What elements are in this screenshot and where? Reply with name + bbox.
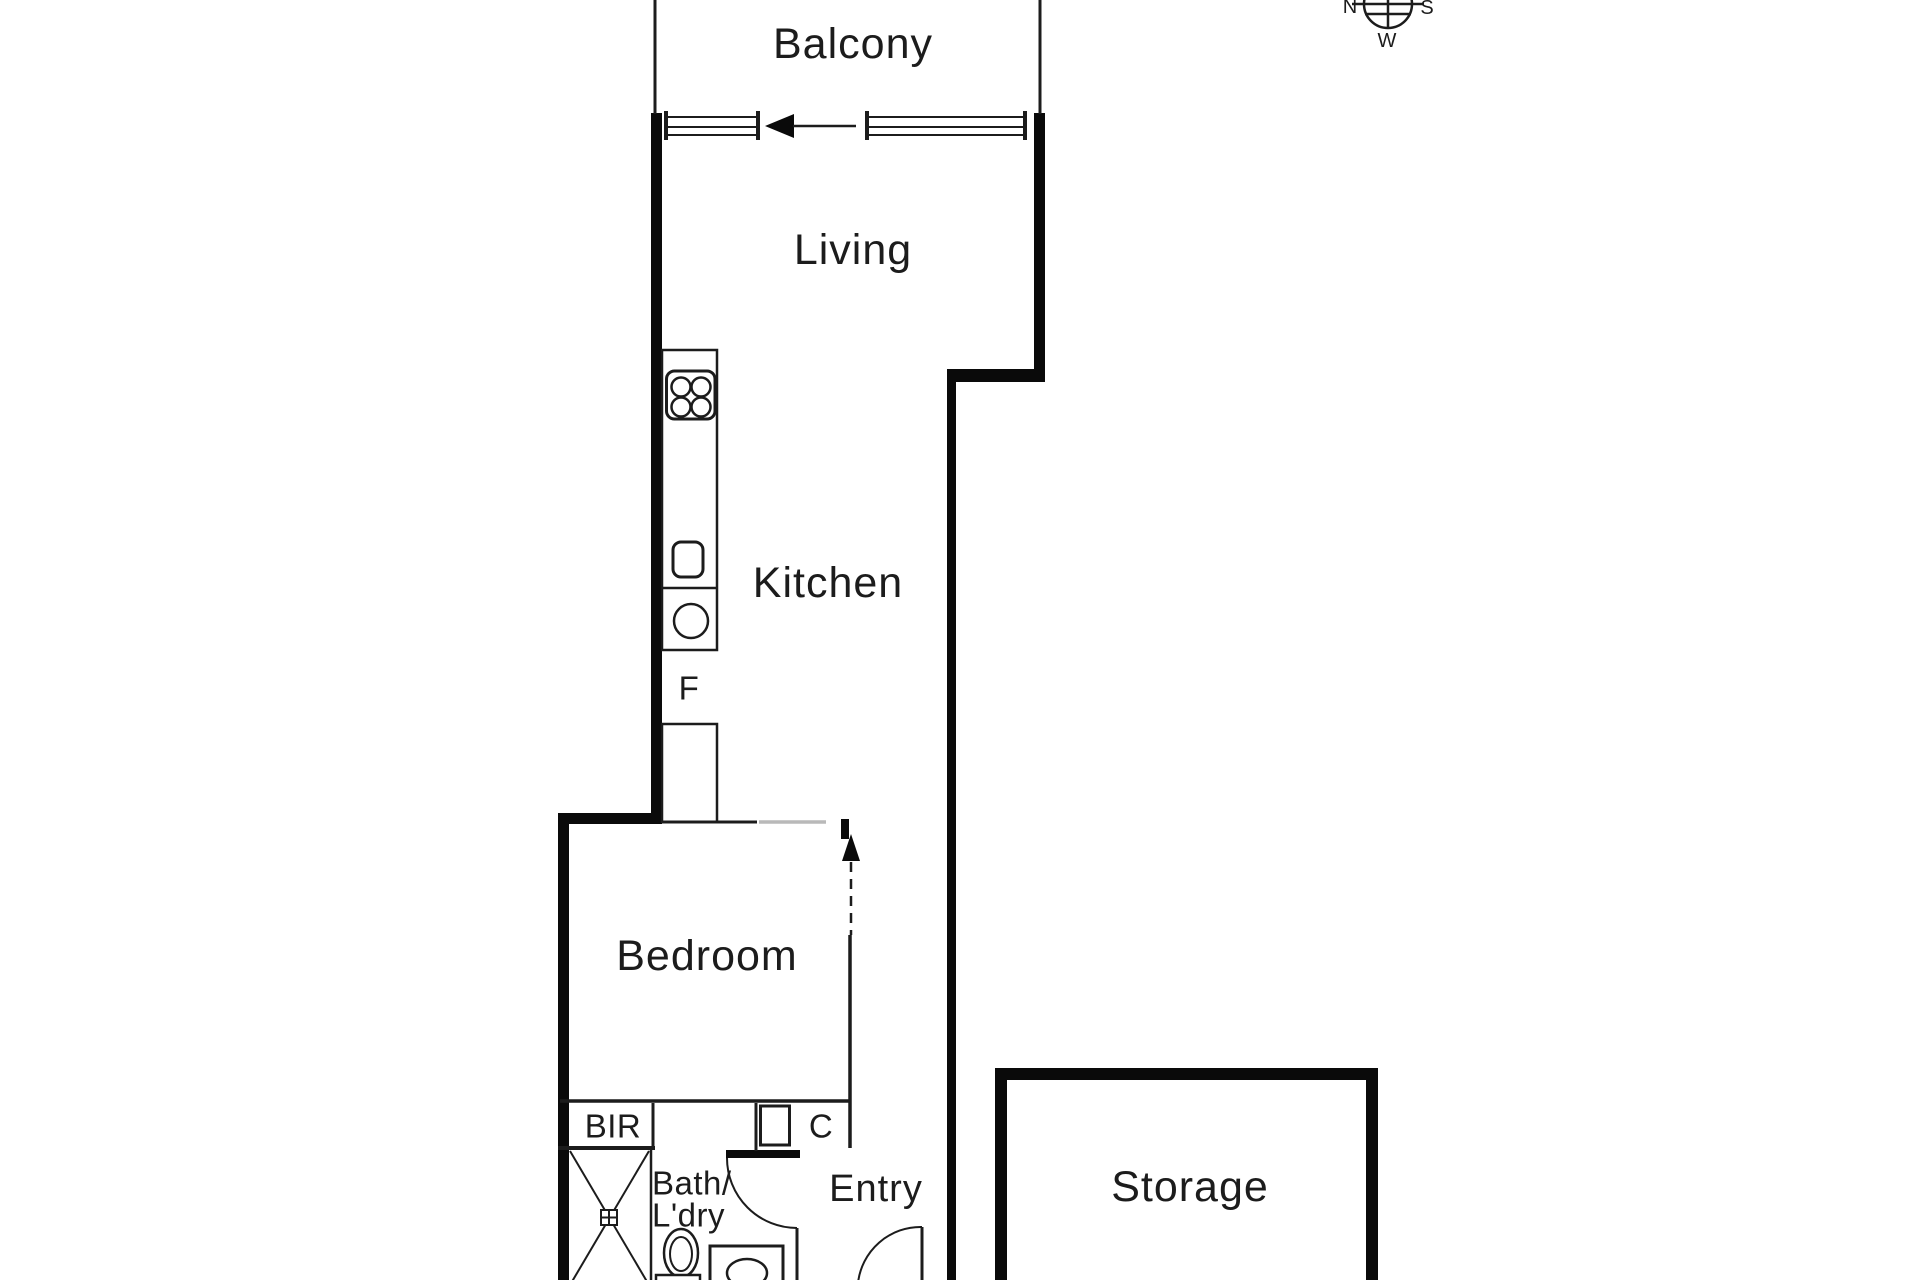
label-cupboard: C: [809, 1108, 833, 1145]
fridge-box: [662, 724, 717, 822]
thin-lines: [558, 0, 1424, 1280]
cupboard-door-icon: [761, 1106, 790, 1145]
toilet-icon: [656, 1229, 700, 1280]
wall-cupboard-bottom: [726, 1150, 800, 1158]
room-label-kitchen: Kitchen: [753, 559, 903, 607]
room-label-bedroom: Bedroom: [616, 932, 797, 980]
window-slide-arrowhead-icon: [765, 114, 794, 138]
wall-kitchen-left: [651, 113, 662, 824]
compass-icon: [1352, 0, 1424, 28]
label-bir: BIR: [585, 1108, 642, 1145]
wall-storage-top: [995, 1068, 1378, 1080]
wall-living-step: [947, 369, 1045, 382]
compass-label-w: W: [1378, 30, 1397, 52]
window-right-icon: [866, 111, 1026, 140]
room-label-storage: Storage: [1111, 1163, 1269, 1211]
compass-label-s: S: [1420, 0, 1433, 19]
wall-storage-right: [1366, 1068, 1378, 1280]
window-left-icon: [665, 111, 759, 140]
label-fridge: F: [679, 670, 700, 707]
room-label-entry: Entry: [829, 1168, 923, 1210]
cooktop-icon: [667, 371, 716, 419]
room-label-living: Living: [794, 226, 912, 274]
room-label-bath-line2: L'dry: [652, 1197, 725, 1234]
wall-living-right: [1034, 113, 1045, 382]
wall-bedroom-top: [558, 813, 662, 824]
wall-storage-left: [995, 1068, 1007, 1280]
laundry-trough-icon: [710, 1246, 783, 1280]
compass-label-n: N: [1343, 0, 1357, 18]
entry-door-icon: [858, 1227, 922, 1280]
room-label-balcony: Balcony: [773, 20, 933, 68]
floorplan-canvas: Balcony Living Kitchen F Bedroom BIR C B…: [0, 0, 1920, 1280]
wall-bedroom-left: [558, 813, 569, 1280]
wall-doorway-stub: [841, 819, 849, 839]
shower-icon: [570, 1150, 651, 1280]
wall-corridor-right: [947, 369, 956, 1280]
